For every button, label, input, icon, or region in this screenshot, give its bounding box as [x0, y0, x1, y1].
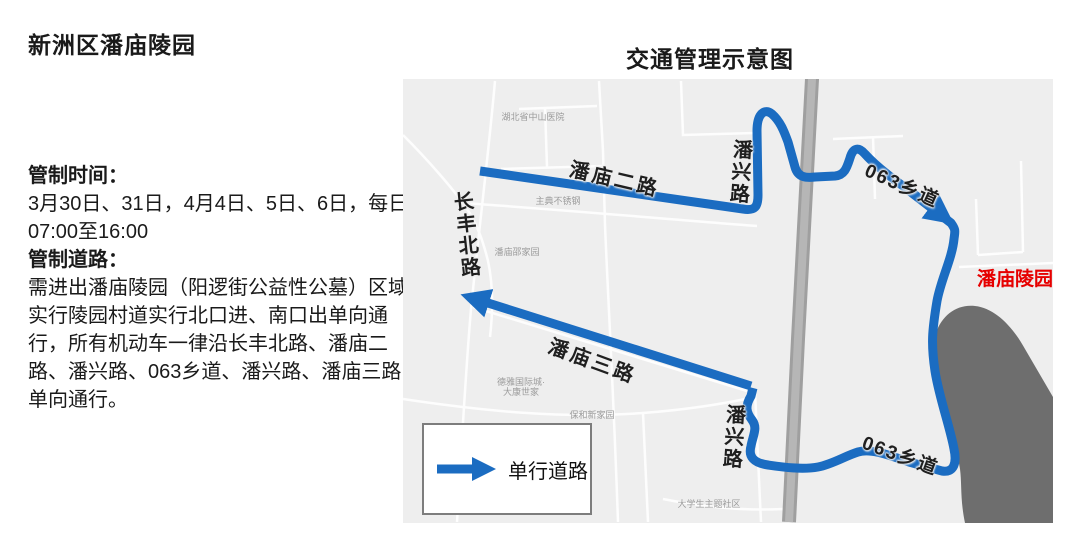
control-time-heading: 管制时间： [28, 162, 420, 190]
legend-label: 单行道路 [508, 455, 588, 484]
map-title: 交通管理示意图 [480, 40, 940, 74]
road-label-panxing-south: 潘兴路 [716, 403, 750, 471]
control-time-body: 3月30日、31日，4月4日、5日、6日，每日07:00至16:00 [28, 190, 420, 246]
cemetery-terrain-area [933, 306, 1053, 523]
one-way-arrow-icon [434, 456, 498, 482]
poi-panmiao-shao-label: 潘庙邵家园 [487, 247, 547, 257]
destination-label: 潘庙陵园 [977, 264, 1053, 291]
traffic-map: 湖北省中山医院 主典不锈钢 潘庙邵家园 德雅国际城·大康世家 保和新家园 大学生… [403, 79, 1053, 523]
legend-box: 单行道路 [422, 423, 592, 515]
poi-hospital-label: 湖北省中山医院 [488, 112, 578, 122]
traffic-control-info: 管制时间： 3月30日、31日，4月4日、5日、6日，每日07:00至16:00… [28, 162, 420, 414]
control-road-heading: 管制道路： [28, 246, 420, 274]
traffic-notice-page: { "left_panel": { "title": "新洲区潘庙陵园", "c… [0, 0, 1080, 555]
road-label-panxing-north: 潘兴路 [723, 138, 757, 206]
poi-baohe-label: 保和新家园 [561, 410, 623, 420]
control-road-body: 需进出潘庙陵园（阳逻街公益性公墓）区域实行陵园村道实行北口进、南口出单向通行，所… [28, 274, 420, 414]
poi-student-label: 大学生主题社区 [669, 499, 749, 509]
cemetery-title: 新洲区潘庙陵园 [28, 26, 196, 60]
poi-deya-label: 德雅国际城·大康世家 [495, 377, 547, 397]
poi-steel-label: 主典不锈钢 [528, 196, 588, 206]
